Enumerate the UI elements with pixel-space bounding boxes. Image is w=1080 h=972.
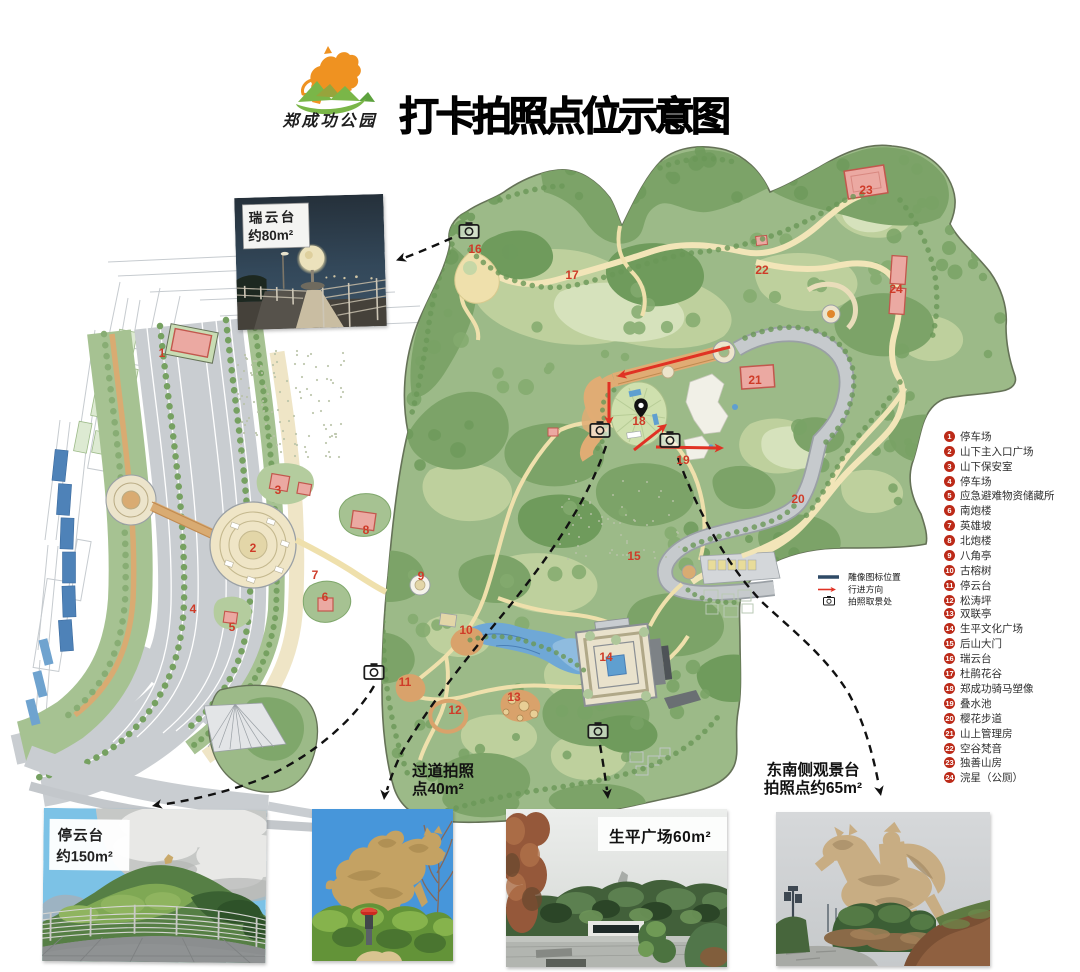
svg-text:16: 16	[468, 242, 482, 256]
svg-text:1: 1	[159, 346, 166, 360]
svg-text:23: 23	[859, 183, 873, 197]
svg-text:20: 20	[791, 492, 805, 506]
svg-text:郑成功公园: 郑成功公园	[281, 112, 377, 130]
svg-text:24: 24	[889, 282, 903, 296]
svg-text:4: 4	[190, 602, 197, 616]
svg-text:8: 8	[363, 523, 370, 537]
svg-text:5: 5	[229, 620, 236, 634]
svg-text:6: 6	[322, 590, 329, 604]
svg-text:行进方向: 行进方向	[848, 584, 883, 595]
svg-text:雕像图标位置: 雕像图标位置	[848, 571, 901, 582]
svg-text:瑞云台: 瑞云台	[249, 208, 297, 225]
svg-text:21: 21	[748, 373, 762, 387]
svg-text:19: 19	[676, 453, 690, 467]
svg-text:拍照取景处: 拍照取景处	[848, 596, 892, 607]
svg-text:17: 17	[565, 268, 579, 282]
svg-text:停云台: 停云台	[57, 826, 104, 844]
svg-text:12: 12	[448, 703, 462, 717]
svg-text:14: 14	[599, 650, 613, 664]
svg-text:约80m²: 约80m²	[248, 226, 294, 243]
svg-text:18: 18	[632, 414, 646, 428]
svg-text:11: 11	[399, 675, 412, 689]
svg-text:2: 2	[250, 541, 257, 555]
svg-text:9: 9	[418, 569, 425, 583]
svg-text:7: 7	[312, 568, 319, 582]
svg-text:13: 13	[507, 690, 521, 704]
svg-text:约150m²: 约150m²	[56, 847, 113, 866]
svg-text:10: 10	[459, 623, 473, 637]
svg-text:15: 15	[627, 549, 641, 563]
svg-text:生平广场60m²: 生平广场60m²	[609, 827, 711, 846]
svg-text:22: 22	[755, 263, 769, 277]
svg-text:3: 3	[275, 483, 282, 497]
